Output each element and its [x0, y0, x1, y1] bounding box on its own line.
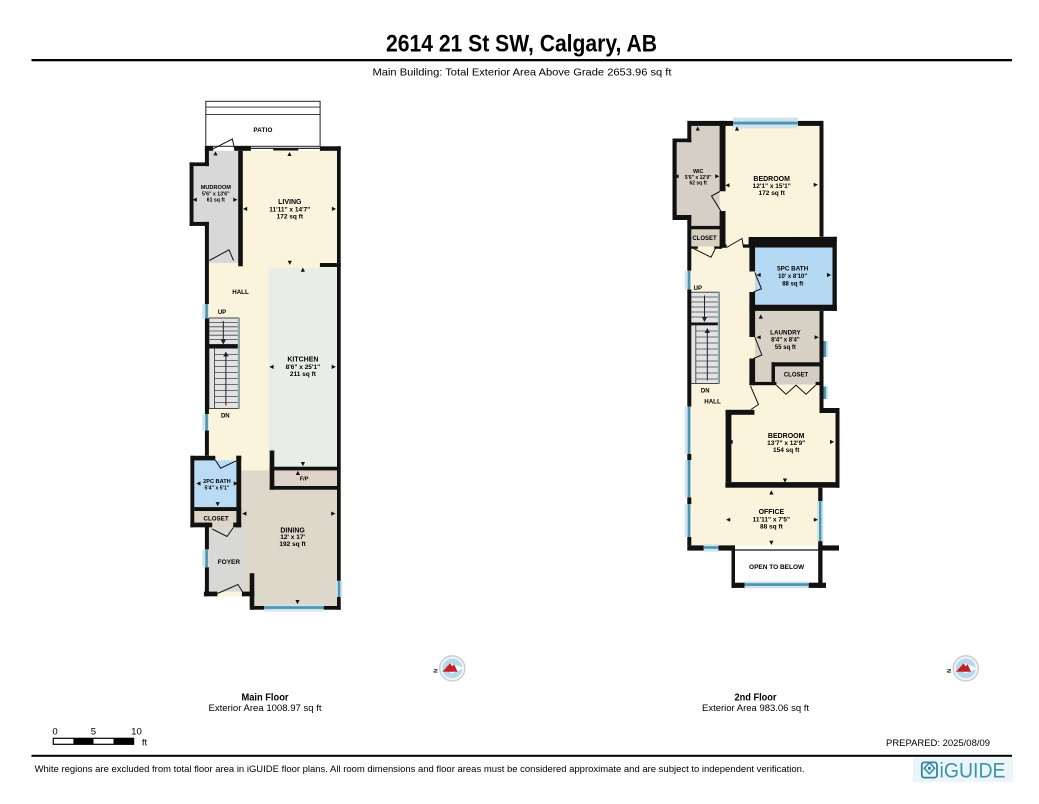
svg-text:62 sq ft: 62 sq ft — [689, 180, 707, 186]
svg-text:88 sq ft: 88 sq ft — [782, 281, 803, 287]
svg-text:White regions are excluded fro: White regions are excluded from total fl… — [35, 764, 805, 774]
svg-text:12' x 17': 12' x 17' — [280, 534, 305, 541]
svg-text:0: 0 — [52, 726, 57, 737]
svg-text:PREPARED: 2025/08/09: PREPARED: 2025/08/09 — [886, 738, 990, 748]
svg-text:172 sq ft: 172 sq ft — [759, 190, 786, 197]
svg-text:UP: UP — [218, 310, 226, 316]
svg-text:2PC BATH: 2PC BATH — [203, 479, 231, 485]
svg-text:HALL: HALL — [704, 399, 721, 406]
svg-text:61 sq ft: 61 sq ft — [207, 197, 225, 203]
svg-text:5'4" x 5'1": 5'4" x 5'1" — [205, 486, 230, 492]
svg-text:DN: DN — [221, 414, 230, 420]
svg-text:ft: ft — [142, 737, 148, 748]
svg-text:PATIO: PATIO — [253, 127, 272, 134]
svg-text:55 sq ft: 55 sq ft — [775, 345, 796, 351]
svg-text:F/P: F/P — [300, 476, 309, 482]
svg-text:192 sq ft: 192 sq ft — [279, 541, 306, 548]
svg-text:Main Floor: Main Floor — [242, 692, 289, 704]
svg-text:8'4" x 8'4": 8'4" x 8'4" — [771, 338, 800, 344]
svg-text:UP: UP — [694, 286, 702, 292]
svg-text:12'1" x 15'1": 12'1" x 15'1" — [753, 183, 791, 190]
svg-text:HALL: HALL — [232, 289, 249, 296]
svg-text:172 sq ft: 172 sq ft — [277, 213, 304, 220]
svg-text:CLOSET: CLOSET — [204, 516, 229, 523]
svg-text:5: 5 — [91, 726, 96, 737]
svg-text:211 sq ft: 211 sq ft — [290, 371, 317, 378]
svg-text:N: N — [947, 669, 953, 673]
svg-text:BEDROOM: BEDROOM — [753, 176, 790, 183]
svg-text:OFFICE: OFFICE — [759, 509, 785, 516]
svg-text:CLOSET: CLOSET — [692, 236, 717, 242]
svg-text:KITCHEN: KITCHEN — [287, 356, 318, 363]
svg-text:BEDROOM: BEDROOM — [768, 433, 805, 440]
svg-text:Main Building: Total Exterior: Main Building: Total Exterior Area Above… — [373, 68, 672, 79]
svg-text:Exterior Area 983.06 sq ft: Exterior Area 983.06 sq ft — [702, 703, 809, 714]
svg-text:5PC BATH: 5PC BATH — [777, 266, 808, 273]
svg-text:13'7" x 12'9": 13'7" x 12'9" — [767, 440, 805, 447]
svg-text:LIVING: LIVING — [278, 199, 302, 206]
svg-text:N: N — [433, 669, 439, 673]
svg-text:CLOSET: CLOSET — [784, 372, 809, 378]
svg-text:154 sq ft: 154 sq ft — [773, 447, 800, 454]
svg-text:2614 21 St SW, Calgary, AB: 2614 21 St SW, Calgary, AB — [386, 31, 657, 58]
svg-text:10' x 8'10": 10' x 8'10" — [778, 274, 807, 280]
svg-text:DN: DN — [701, 389, 710, 395]
svg-text:10: 10 — [131, 726, 142, 737]
svg-text:LAUNDRY: LAUNDRY — [770, 330, 801, 337]
svg-text:OPEN TO BELOW: OPEN TO BELOW — [749, 564, 805, 571]
svg-text:88 sq ft: 88 sq ft — [760, 524, 784, 531]
svg-text:Exterior Area 1008.97 sq ft: Exterior Area 1008.97 sq ft — [209, 703, 322, 714]
svg-text:8'6" x 25'1": 8'6" x 25'1" — [286, 364, 321, 371]
svg-text:11'11" x 7'5": 11'11" x 7'5" — [753, 517, 790, 524]
svg-text:iGUIDE: iGUIDE — [940, 759, 1006, 782]
svg-text:MUDROOM: MUDROOM — [201, 185, 231, 191]
svg-text:FOYER: FOYER — [218, 559, 241, 566]
svg-text:2nd Floor: 2nd Floor — [735, 692, 777, 704]
svg-text:11'11" x 14'7": 11'11" x 14'7" — [269, 206, 310, 213]
